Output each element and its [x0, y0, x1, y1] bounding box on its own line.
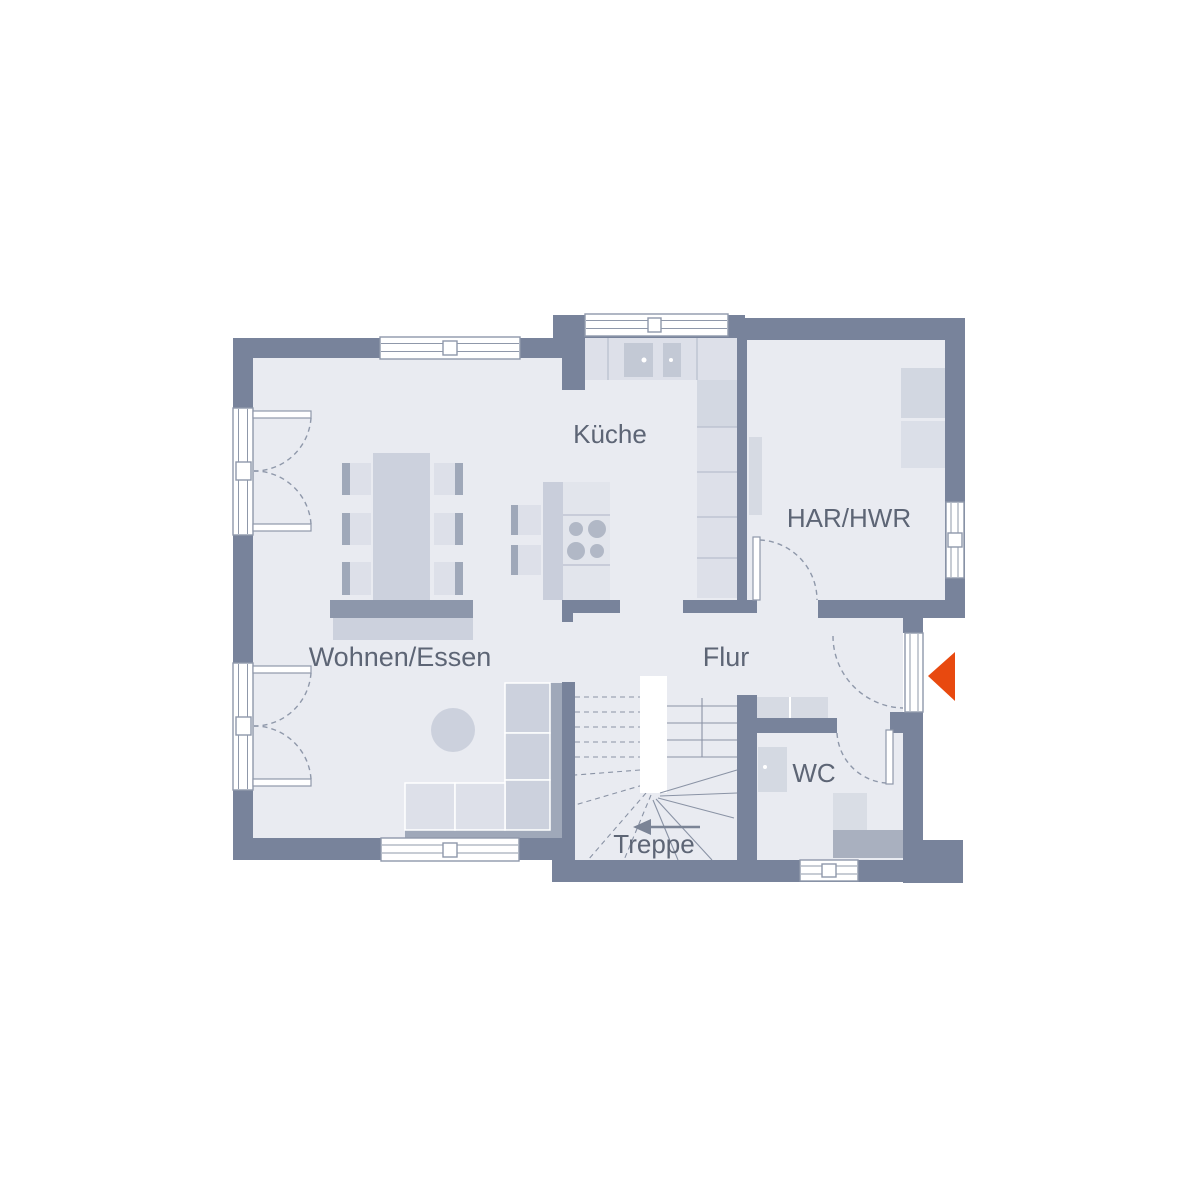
- wall-bottom-stairs-wc: [552, 860, 933, 882]
- window-wc: [800, 860, 858, 881]
- label-treppe: Treppe: [613, 829, 694, 859]
- wall-stair-left: [562, 682, 575, 860]
- appliance-washer: [901, 368, 945, 418]
- wc-halfwall: [833, 830, 903, 858]
- wall-stair-wc-divider: [737, 695, 757, 860]
- appliance-dryer: [901, 421, 945, 468]
- window-har-right: [946, 502, 964, 578]
- entrance-arrow-icon: [928, 652, 955, 701]
- sideboard-top: [330, 600, 473, 618]
- stair-void: [640, 676, 667, 793]
- kitchen-sink: [624, 343, 653, 377]
- wall-har-bottom-right: [818, 600, 965, 618]
- sideboard: [333, 618, 473, 640]
- floor-plan-svg: Küche HAR/HWR Wohnen/Essen Flur WC Trepp…: [0, 0, 1200, 1200]
- wall-entry-top: [903, 618, 923, 633]
- label-flur: Flur: [703, 642, 750, 672]
- dining-table: [373, 453, 430, 600]
- hall-bench: [752, 697, 828, 718]
- window-top-living: [380, 337, 520, 359]
- island-body: [563, 482, 610, 600]
- window-kitchen: [585, 314, 728, 336]
- dining-chairs-right: [434, 463, 463, 595]
- dining-chairs-left: [342, 463, 371, 595]
- coffee-table: [431, 708, 475, 752]
- har-shelf: [749, 437, 762, 515]
- counter-top: [573, 338, 737, 380]
- wall-har-bottom-left: [683, 600, 757, 613]
- wall-kitchen-corner: [553, 338, 585, 358]
- wc-toilet: [833, 793, 867, 830]
- label-wc: WC: [792, 758, 835, 788]
- wall-entry-bottom: [890, 712, 923, 733]
- wc-sink: [758, 747, 787, 792]
- wall-kitchen-pier: [562, 358, 585, 390]
- wall-wc-east: [903, 733, 923, 845]
- label-wohnen-essen: Wohnen/Essen: [309, 642, 492, 672]
- sofa-back-right: [550, 683, 563, 838]
- wall-top-har: [745, 318, 965, 340]
- island-left: [543, 482, 563, 600]
- wall-kitchen-har-divider: [737, 338, 747, 613]
- label-har-hwr: HAR/HWR: [787, 503, 911, 533]
- floor-plan-canvas: Küche HAR/HWR Wohnen/Essen Flur WC Trepp…: [0, 0, 1200, 1200]
- wall-island-stub: [562, 600, 620, 613]
- label-kueche: Küche: [573, 419, 647, 449]
- window-bottom-living: [381, 838, 519, 861]
- wall-se-corner: [903, 840, 963, 883]
